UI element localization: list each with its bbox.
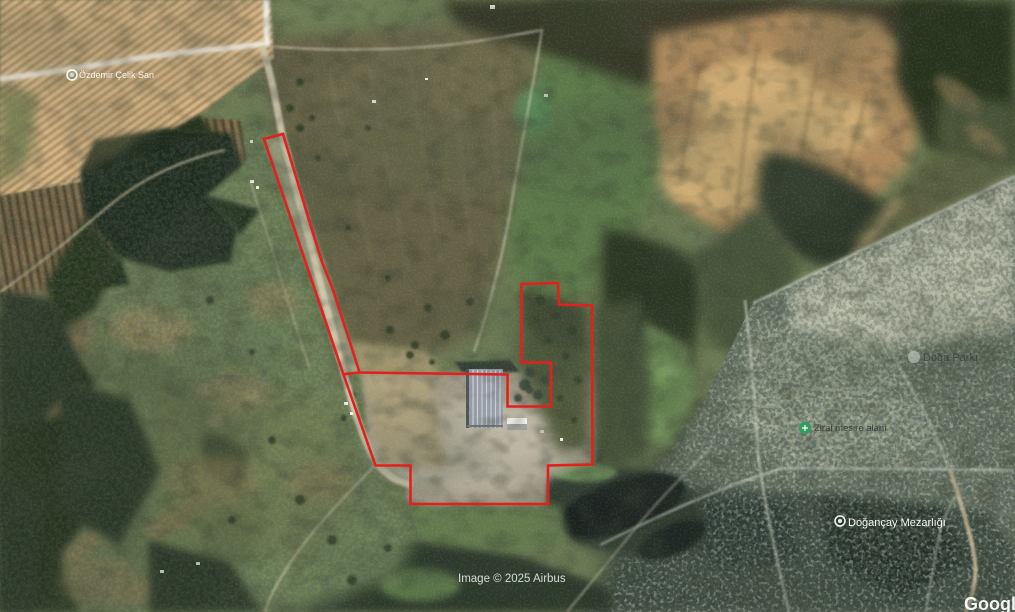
svg-text:Özdemir Çelik San: Özdemir Çelik San [79,70,154,80]
svg-text:Image © 2025 Airbus: Image © 2025 Airbus [458,573,566,585]
svg-text:Doğa Parkı: Doğa Parkı [923,352,978,364]
svg-text:Doğançay Mezarlığı: Doğançay Mezarlığı [848,517,946,529]
svg-text:Googl: Googl [964,594,1015,612]
svg-text:Zirai mesire alanı: Zirai mesire alanı [814,423,887,434]
